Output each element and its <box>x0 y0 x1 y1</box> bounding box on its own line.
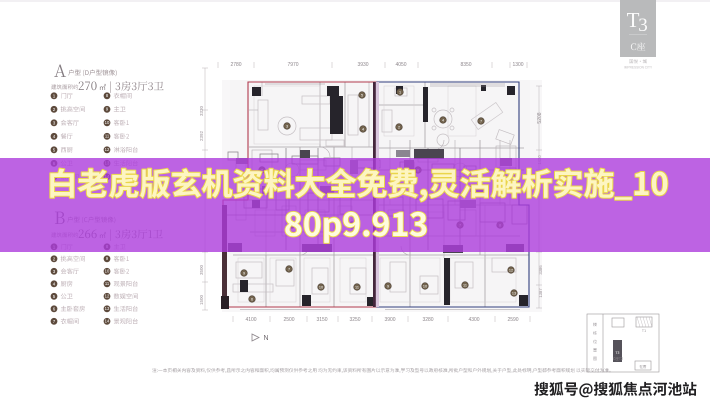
svg-text:3930: 3930 <box>357 62 368 68</box>
svg-text:2780: 2780 <box>230 62 241 68</box>
svg-text:3250: 3250 <box>349 317 360 323</box>
svg-text:4: 4 <box>442 118 444 122</box>
svg-text:5: 5 <box>361 93 363 97</box>
svg-text:11: 11 <box>105 134 110 139</box>
svg-text:1: 1 <box>399 90 401 94</box>
svg-text:13: 13 <box>105 306 110 311</box>
svg-text:7: 7 <box>288 267 290 271</box>
svg-text:6: 6 <box>251 297 253 301</box>
svg-text:12: 12 <box>509 268 513 272</box>
svg-text:4100: 4100 <box>245 317 256 323</box>
svg-text:11: 11 <box>355 285 359 289</box>
svg-text:3900: 3900 <box>384 317 395 323</box>
svg-text:9: 9 <box>243 271 245 275</box>
svg-text:7: 7 <box>480 119 482 123</box>
svg-text:3330: 3330 <box>199 105 204 116</box>
svg-text:8350: 8350 <box>460 62 471 68</box>
svg-text:2500: 2500 <box>283 317 294 323</box>
svg-text:3: 3 <box>286 124 288 128</box>
svg-text:1300: 1300 <box>512 62 523 68</box>
svg-text:N: N <box>263 335 268 342</box>
svg-text:14: 14 <box>105 319 110 324</box>
svg-text:10: 10 <box>105 269 110 274</box>
svg-text:IMPRESSION CITY: IMPRESSION CITY <box>624 66 653 70</box>
svg-text:3: 3 <box>638 15 648 36</box>
svg-text:11: 11 <box>105 281 110 286</box>
svg-text:2590: 2590 <box>507 317 518 323</box>
svg-text:2: 2 <box>398 125 400 129</box>
svg-text:2392: 2392 <box>199 130 204 141</box>
svg-text:3280: 3280 <box>422 317 433 323</box>
svg-text:5208: 5208 <box>537 112 543 123</box>
svg-text:13: 13 <box>512 291 516 295</box>
svg-text:9: 9 <box>387 284 389 288</box>
svg-text:4: 4 <box>362 127 364 131</box>
svg-text:12: 12 <box>105 147 110 152</box>
svg-text:4300: 4300 <box>468 317 479 323</box>
svg-text:10: 10 <box>423 284 427 288</box>
svg-text:12: 12 <box>105 294 110 299</box>
svg-text:3500: 3500 <box>199 264 204 275</box>
svg-text:4050: 4050 <box>395 62 406 68</box>
svg-text:11: 11 <box>463 283 467 287</box>
svg-text:3150: 3150 <box>316 317 327 323</box>
svg-text:1500: 1500 <box>199 294 204 305</box>
svg-text:7970: 7970 <box>287 62 298 68</box>
svg-text:10: 10 <box>319 285 323 289</box>
svg-text:10: 10 <box>105 120 110 125</box>
